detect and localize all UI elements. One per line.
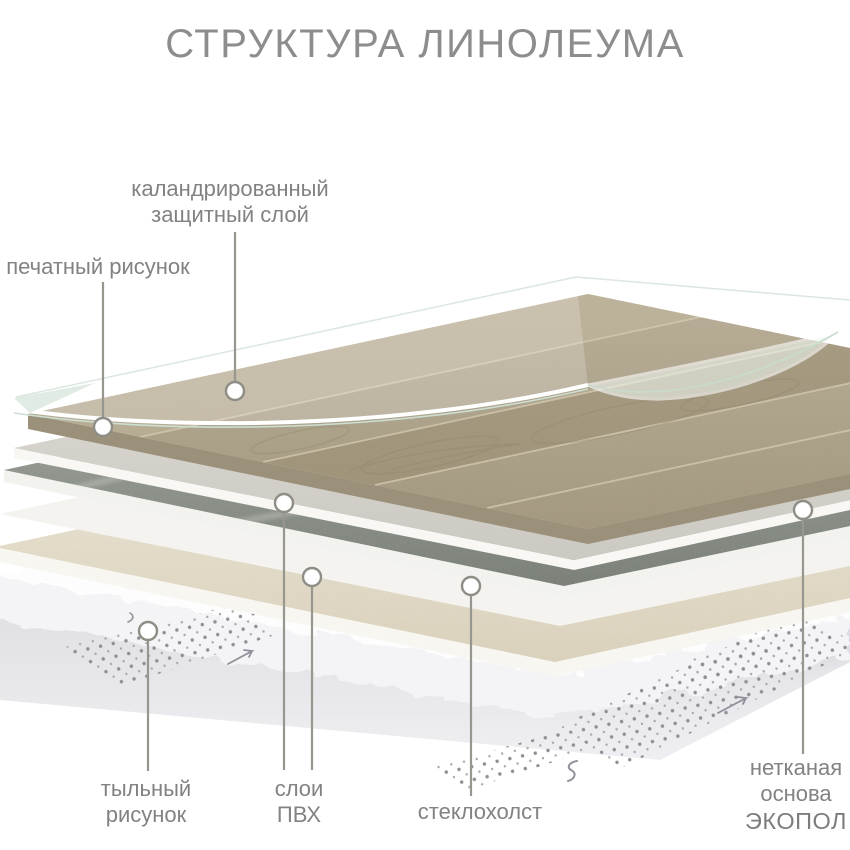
label-base-line2: основа (744, 781, 848, 807)
label-pvc-line1: слои (250, 776, 348, 802)
label-pvc-layers: слои ПВХ (250, 776, 348, 828)
label-base-brand: ЭКОПОЛ (744, 808, 848, 834)
marker-pvc-2 (303, 568, 321, 586)
marker-base (794, 501, 812, 519)
label-fiberglass-text: стеклохолст (390, 799, 570, 825)
label-back-pattern: тыльный рисунок (56, 776, 236, 828)
label-protective-line2: защитный слой (98, 202, 362, 228)
marker-pvc-1 (275, 494, 293, 512)
marker-protective (226, 382, 244, 400)
label-back-line1: тыльный (56, 776, 236, 802)
layer-stack-illustration (0, 0, 850, 850)
marker-printed (94, 418, 112, 436)
label-printed-pattern: печатный рисунок (2, 254, 194, 280)
label-printed-text: печатный рисунок (2, 254, 194, 280)
label-base-line1: нетканая (744, 755, 848, 781)
marker-back (139, 622, 157, 640)
label-fiberglass: стеклохолст (390, 799, 570, 825)
label-protective-line1: каландрированный (98, 176, 362, 202)
label-nonwoven-base: нетканая основа ЭКОПОЛ (744, 755, 848, 834)
linoleum-structure-infographic: СТРУКТУРА ЛИНОЛЕУМА (0, 0, 850, 850)
marker-fiberglass (462, 577, 480, 595)
label-protective-layer: каландрированный защитный слой (98, 176, 362, 228)
label-pvc-line2: ПВХ (250, 802, 348, 828)
label-back-line2: рисунок (56, 802, 236, 828)
